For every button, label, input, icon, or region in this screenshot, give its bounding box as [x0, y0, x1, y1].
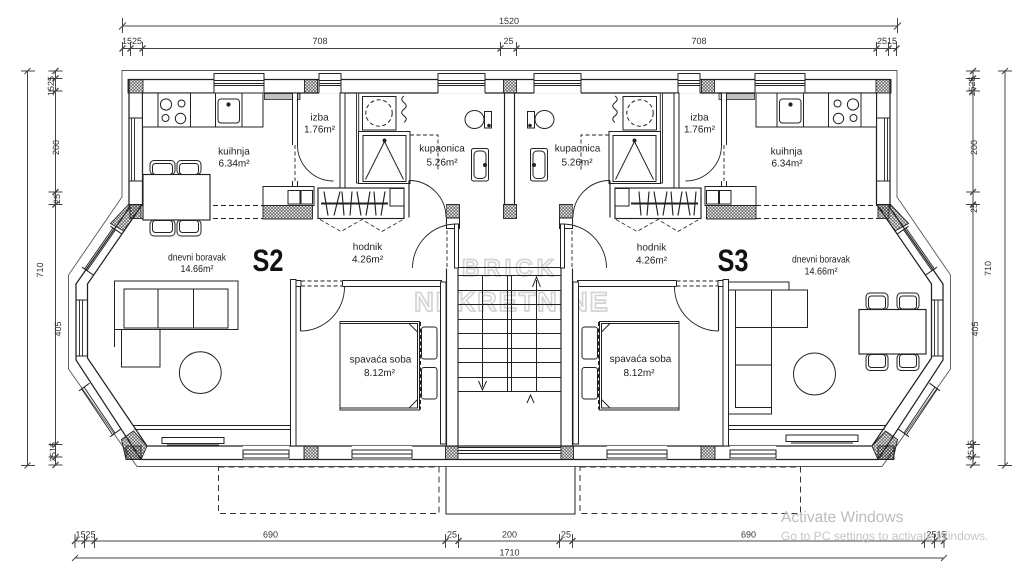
svg-text:hodnik: hodnik: [353, 242, 383, 253]
svg-text:6.34m²: 6.34m²: [218, 159, 250, 170]
svg-text:6.34m²: 6.34m²: [771, 159, 803, 170]
svg-text:14.66m²: 14.66m²: [805, 267, 839, 278]
svg-text:kupaonica: kupaonica: [419, 144, 465, 155]
svg-text:8.12m²: 8.12m²: [364, 368, 396, 379]
svg-text:690: 690: [741, 530, 756, 540]
svg-text:25: 25: [561, 530, 571, 540]
svg-text:4.26m²: 4.26m²: [352, 255, 384, 266]
svg-text:kuihnja: kuihnja: [218, 147, 250, 158]
svg-text:4.26m²: 4.26m²: [636, 256, 668, 267]
svg-text:1525: 1525: [75, 530, 95, 540]
svg-text:1525: 1525: [122, 36, 142, 46]
svg-text:S2: S2: [253, 243, 284, 278]
svg-text:405: 405: [53, 321, 63, 336]
svg-text:405: 405: [970, 321, 980, 336]
svg-text:25: 25: [447, 530, 457, 540]
svg-text:2515: 2515: [877, 36, 897, 46]
svg-text:5.26m²: 5.26m²: [561, 158, 593, 169]
svg-text:8.12m²: 8.12m²: [623, 368, 655, 379]
svg-text:dnevni boravak: dnevni boravak: [168, 253, 227, 264]
svg-text:25: 25: [969, 203, 979, 213]
svg-text:708: 708: [691, 36, 706, 46]
svg-text:kuihnja: kuihnja: [771, 147, 803, 158]
svg-text:1.76m²: 1.76m²: [684, 125, 716, 136]
svg-text:kupaonica: kupaonica: [555, 144, 601, 155]
svg-text:25: 25: [503, 36, 513, 46]
svg-text:hodnik: hodnik: [637, 243, 667, 254]
svg-text:Go to PC settings to activate: Go to PC settings to activate Windows.: [781, 529, 988, 543]
svg-text:spavaća soba: spavaća soba: [350, 355, 412, 366]
svg-text:BRICK: BRICK: [462, 255, 558, 282]
svg-text:1710: 1710: [499, 548, 519, 558]
svg-text:14.66m²: 14.66m²: [181, 264, 215, 275]
svg-text:Activate Windows: Activate Windows: [781, 509, 904, 526]
svg-text:2515: 2515: [48, 442, 58, 462]
svg-text:708: 708: [312, 36, 327, 46]
svg-text:5.26m²: 5.26m²: [426, 158, 458, 169]
svg-text:710: 710: [35, 262, 45, 277]
svg-text:2515: 2515: [966, 440, 976, 460]
svg-text:200: 200: [502, 530, 517, 540]
svg-text:1520: 1520: [499, 16, 519, 26]
svg-text:1.76m²: 1.76m²: [304, 125, 336, 136]
svg-text:dnevni boravak: dnevni boravak: [792, 255, 851, 266]
svg-text:690: 690: [263, 530, 278, 540]
svg-text:S3: S3: [718, 243, 749, 278]
svg-text:izba: izba: [690, 113, 709, 124]
svg-text:1525: 1525: [967, 76, 977, 96]
svg-text:1525: 1525: [46, 76, 56, 96]
svg-text:25: 25: [52, 194, 62, 204]
svg-text:200: 200: [51, 140, 61, 155]
svg-text:710: 710: [983, 261, 993, 276]
svg-text:izba: izba: [310, 113, 329, 124]
svg-text:spavaća soba: spavaća soba: [610, 354, 672, 365]
svg-text:200: 200: [969, 140, 979, 155]
